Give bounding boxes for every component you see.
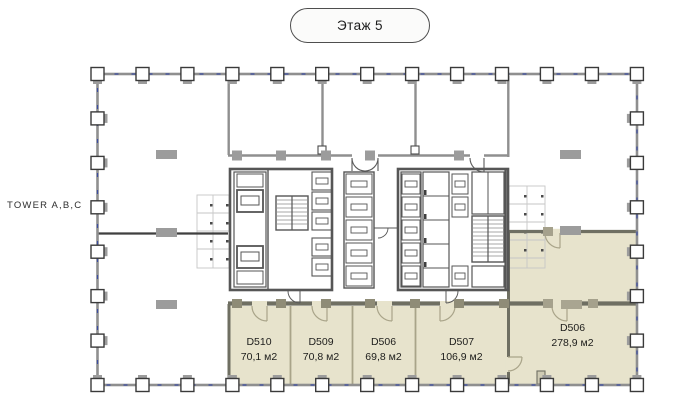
core-door-frames	[424, 190, 427, 267]
floor-selector-label: Этаж 5	[337, 18, 383, 33]
room-area: 70,1 м2	[228, 351, 290, 365]
room-area: 278,9 м2	[508, 337, 637, 351]
room-area: 106,9 м2	[415, 351, 508, 365]
interior-walls-top	[228, 76, 508, 157]
room-label-d510[interactable]: D510 70,1 м2	[228, 336, 290, 364]
tower-label: TOWER A,B,C	[7, 200, 82, 211]
room-id: D507	[415, 336, 508, 350]
room-area: 69,8 м2	[352, 351, 415, 365]
service-cores	[230, 169, 508, 290]
room-label-d507[interactable]: D507 106,9 м2	[415, 336, 508, 364]
room-label-d506-small[interactable]: D506 69,8 м2	[352, 336, 415, 364]
room-label-d509[interactable]: D509 70,8 м2	[290, 336, 352, 364]
fixtures-left	[197, 195, 229, 268]
room-id: D509	[290, 336, 352, 350]
floor-plan-page: Этаж 5 TOWER A,B,C D510 70,1 м2 D509 70,…	[0, 0, 682, 414]
room-label-d506-large[interactable]: D506 278,9 м2	[508, 322, 637, 350]
room-id: D510	[228, 336, 290, 350]
room-id: D506	[508, 322, 637, 336]
room-id: D506	[352, 336, 415, 350]
room-area: 70,8 м2	[290, 351, 352, 365]
floor-selector-pill[interactable]: Этаж 5	[290, 8, 430, 43]
